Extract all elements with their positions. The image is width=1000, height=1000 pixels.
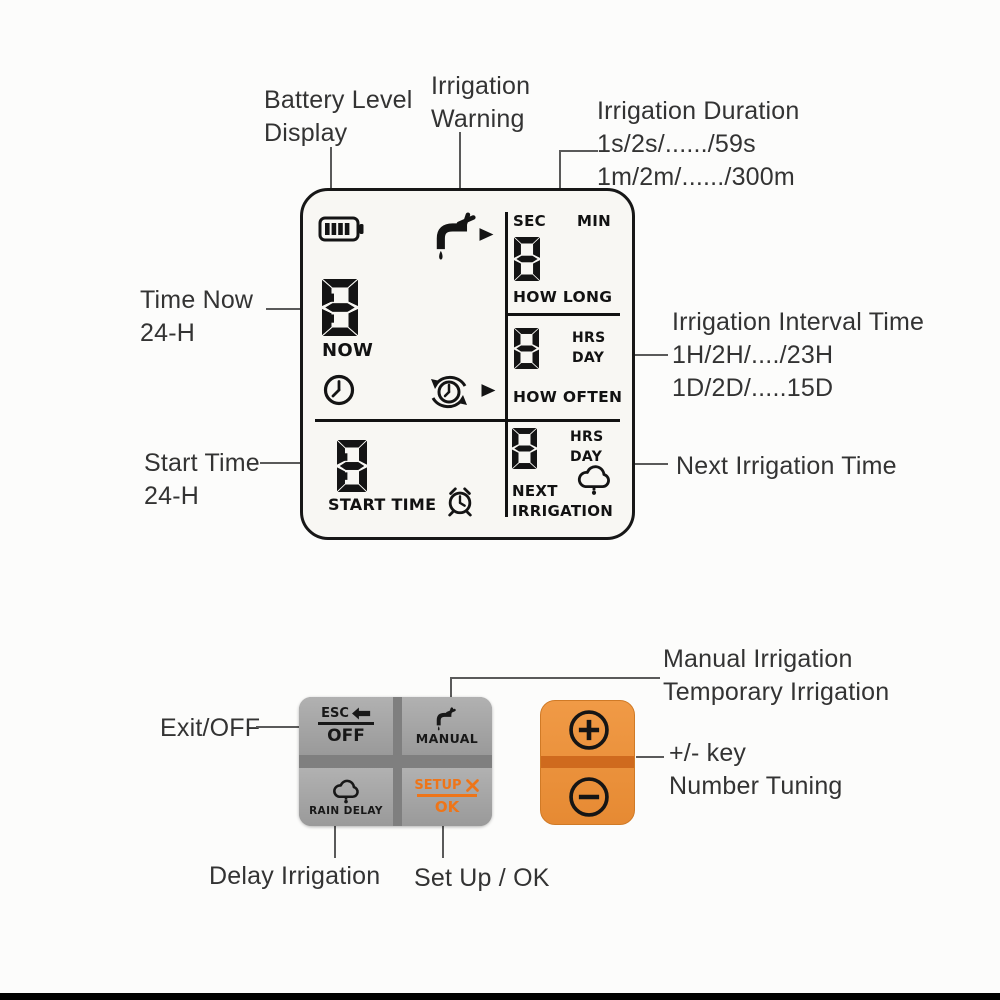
plus-minus-key <box>540 700 635 825</box>
hrs-label-1: HRS <box>572 330 605 346</box>
off-label: OFF <box>327 726 365 746</box>
arrow-right-icon <box>479 227 495 242</box>
manual-button[interactable]: MANUAL <box>402 697 492 755</box>
manual-pointer-line-v <box>450 677 452 698</box>
interval-label-line3: 1D/2D/.....15D <box>672 372 924 405</box>
min-label: MIN <box>577 212 611 230</box>
cycle-clock-icon <box>425 371 477 413</box>
sec-label: SEC <box>513 212 546 230</box>
ok-label: OK <box>435 798 459 816</box>
alarm-clock-icon <box>445 485 475 517</box>
interval-label: Irrigation Interval Time 1H/2H/..../23H … <box>672 306 924 405</box>
plusminus-label: +/- key Number Tuning <box>669 737 843 803</box>
irrigation-warning-icon <box>430 211 486 261</box>
start-time-lcd-label: START TIME <box>328 495 436 514</box>
manual-label-line2: Temporary Irrigation <box>663 676 889 709</box>
hrs-label-2: HRS <box>570 429 603 445</box>
cycle-arrow-right-icon <box>481 383 497 398</box>
warning-label-line1: Irrigation <box>431 70 530 103</box>
interval-label-line1: Irrigation Interval Time <box>672 306 924 339</box>
esc-arrow-icon <box>352 707 371 720</box>
lcd-panel: NOW START TIME <box>300 188 635 540</box>
setup-label: SETUP <box>414 778 461 793</box>
manual-label: MANUAL <box>416 731 478 746</box>
plusminus-label-line2: Number Tuning <box>669 770 843 803</box>
duration-label-line1: Irrigation Duration <box>597 95 800 128</box>
setup-divider <box>417 794 477 797</box>
delay-pointer-line <box>334 826 336 858</box>
interval-label-line2: 1H/2H/..../23H <box>672 339 924 372</box>
rain-delay-label: RAIN DELAY <box>309 805 383 817</box>
time-now-label: Time Now 24-H <box>140 284 253 350</box>
exit-pointer-line <box>256 726 300 728</box>
rain-delay-button[interactable]: RAIN DELAY <box>299 768 393 826</box>
battery-label-line1: Battery Level <box>264 84 413 117</box>
esc-off-button[interactable]: ESC OFF <box>299 697 393 755</box>
lcd-right-divider-1 <box>505 313 620 316</box>
rain-cloud-icon <box>575 463 613 497</box>
minus-button[interactable] <box>566 774 612 820</box>
exit-label: Exit/OFF <box>160 712 260 745</box>
battery-icon <box>318 216 364 242</box>
duration-label-line3: 1m/2m/....../300m <box>597 161 800 194</box>
plusminus-pointer-line <box>636 756 664 758</box>
now-label: NOW <box>322 340 373 361</box>
next-label: NEXT <box>512 482 558 500</box>
lcd-horizontal-divider <box>315 419 620 422</box>
battery-label-line2: Display <box>264 117 413 150</box>
clock-icon <box>322 373 356 407</box>
start-time-label-line2: 24-H <box>144 480 260 513</box>
setup-pointer-line <box>442 826 444 858</box>
irrigation-timer-diagram: Battery Level Display Irrigation Warning… <box>0 0 1000 1000</box>
setup-ok-button[interactable]: SETUP OK <box>402 768 492 826</box>
setup-ok-label: Set Up / OK <box>414 862 550 895</box>
delay-label: Delay Irrigation <box>209 860 380 893</box>
how-long-label: HOW LONG <box>513 288 612 306</box>
day-label-1: DAY <box>572 350 604 366</box>
manual-label-line1: Manual Irrigation <box>663 643 889 676</box>
esc-divider <box>318 722 374 725</box>
warning-label: Irrigation Warning <box>431 70 530 136</box>
how-often-label: HOW OFTEN <box>513 388 622 406</box>
wrench-icon <box>465 778 480 793</box>
plus-minus-divider <box>541 756 634 768</box>
plus-button[interactable] <box>566 707 612 753</box>
plusminus-label-line1: +/- key <box>669 737 843 770</box>
bottom-border-bar <box>0 993 1000 1000</box>
irrigation-label: IRRIGATION <box>512 502 613 520</box>
battery-label: Battery Level Display <box>264 84 413 150</box>
time-now-label-line2: 24-H <box>140 317 253 350</box>
next-irrigation-label: Next Irrigation Time <box>676 450 897 483</box>
esc-label: ESC <box>321 706 349 721</box>
start-time-label-line1: Start Time <box>144 447 260 480</box>
warning-label-line2: Warning <box>431 103 530 136</box>
duration-label-line2: 1s/2s/....../59s <box>597 128 800 161</box>
keypad: ESC OFF MANUAL RAIN DELAY <box>299 697 492 826</box>
rain-cloud-icon <box>330 778 362 805</box>
duration-pointer-line-h <box>559 150 598 152</box>
time-now-label-line1: Time Now <box>140 284 253 317</box>
start-time-label: Start Time 24-H <box>144 447 260 513</box>
faucet-icon <box>433 707 461 731</box>
duration-label: Irrigation Duration 1s/2s/....../59s 1m/… <box>597 95 800 194</box>
manual-label: Manual Irrigation Temporary Irrigation <box>663 643 889 709</box>
manual-pointer-line-h <box>450 677 660 679</box>
lcd-vertical-divider <box>505 212 508 517</box>
